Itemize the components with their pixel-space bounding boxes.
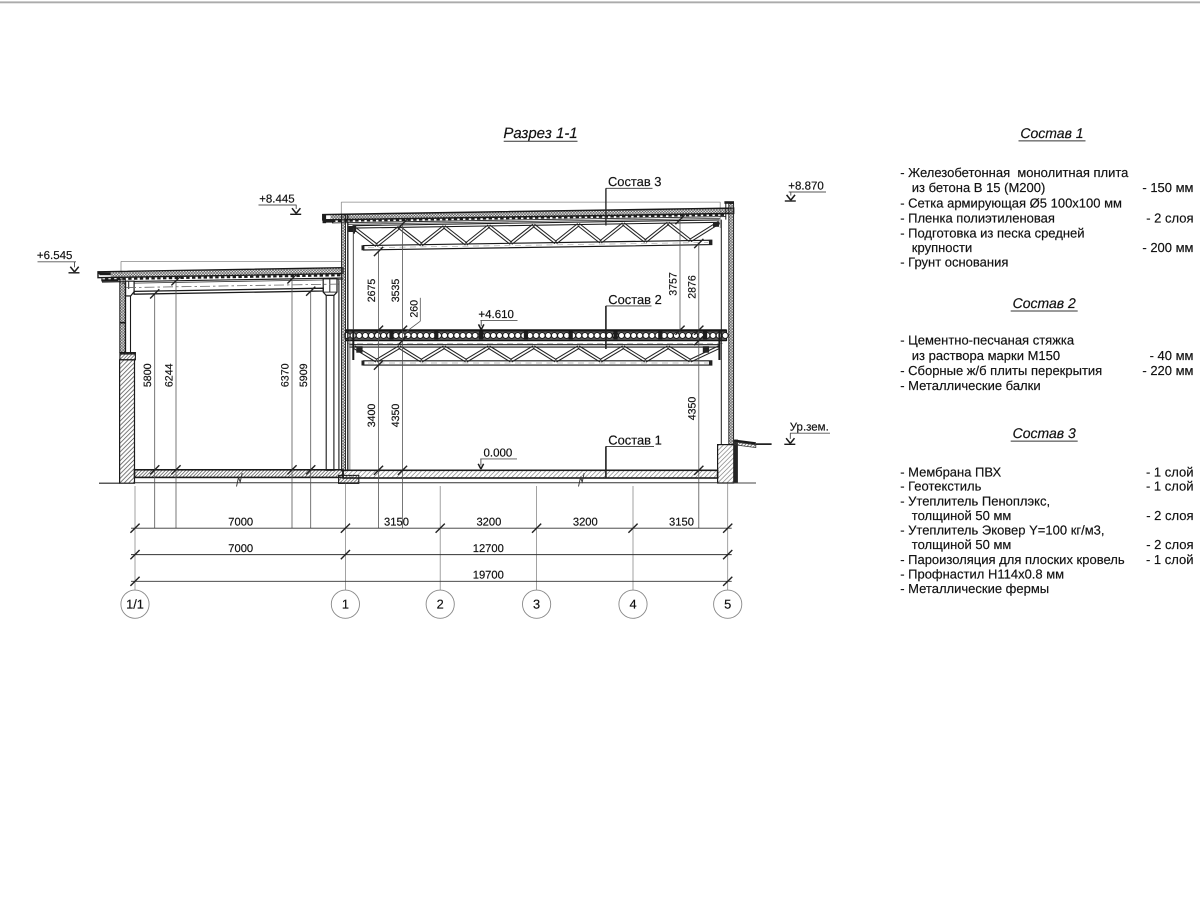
svg-text:из бетона В 15 (М200): из бетона В 15 (М200) — [912, 180, 1046, 195]
svg-text:- 40 мм: - 40 мм — [1150, 348, 1194, 363]
svg-text:- Подготовка из песка средней: - Подготовка из песка средней — [900, 225, 1084, 240]
svg-text:Разрез 1-1: Разрез 1-1 — [503, 125, 577, 142]
svg-text:- Цементно-песчаная стяжка: - Цементно-песчаная стяжка — [900, 333, 1075, 348]
svg-text:+8.870: +8.870 — [788, 180, 824, 192]
svg-text:- 1 слой: - 1 слой — [1146, 552, 1194, 567]
svg-text:3400: 3400 — [366, 404, 378, 428]
svg-text:1/1: 1/1 — [126, 597, 144, 612]
svg-text:- Металлические фермы: - Металлические фермы — [900, 581, 1049, 596]
svg-text:+6.545: +6.545 — [37, 250, 73, 262]
svg-text:Состав 1: Состав 1 — [1020, 125, 1083, 141]
svg-text:Ур.зем.: Ур.зем. — [790, 422, 829, 434]
svg-text:0.000: 0.000 — [484, 447, 513, 459]
svg-text:- Грунт основания: - Грунт основания — [900, 254, 1008, 269]
svg-text:5: 5 — [724, 597, 731, 612]
svg-text:260: 260 — [409, 300, 421, 318]
svg-text:1: 1 — [342, 597, 349, 612]
svg-text:- Мембрана ПВХ: - Мембрана ПВХ — [900, 464, 1001, 479]
svg-text:6244: 6244 — [164, 363, 176, 387]
svg-text:- Профнастил Н114х0.8 мм: - Профнастил Н114х0.8 мм — [900, 567, 1064, 582]
svg-text:4350: 4350 — [390, 404, 402, 428]
svg-text:5909: 5909 — [298, 363, 310, 387]
svg-text:2876: 2876 — [686, 275, 698, 299]
svg-text:+4.610: +4.610 — [478, 309, 514, 321]
svg-text:6370: 6370 — [280, 363, 292, 387]
svg-text:12700: 12700 — [473, 543, 504, 555]
svg-text:5800: 5800 — [142, 363, 154, 387]
svg-text:- 2 слоя: - 2 слоя — [1146, 508, 1193, 523]
svg-text:3535: 3535 — [390, 279, 402, 303]
svg-text:- Металлические балки: - Металлические балки — [900, 378, 1040, 393]
svg-text:3200: 3200 — [476, 516, 501, 528]
svg-text:- 200 мм: - 200 мм — [1142, 240, 1193, 255]
svg-text:- Пленка полиэтиленовая: - Пленка полиэтиленовая — [900, 210, 1055, 225]
svg-text:3200: 3200 — [573, 516, 598, 528]
svg-text:толщиной 50 мм: толщиной 50 мм — [912, 508, 1012, 523]
svg-text:Состав 3: Состав 3 — [608, 174, 661, 189]
svg-text:+8.445: +8.445 — [259, 193, 295, 205]
svg-text:Состав 2: Состав 2 — [608, 292, 661, 307]
svg-text:3150: 3150 — [384, 516, 409, 528]
svg-text:из раствора марки М150: из раствора марки М150 — [912, 348, 1060, 363]
svg-text:2675: 2675 — [366, 279, 378, 303]
svg-text:- Сетка армирующая Ø5 100х100: - Сетка армирующая Ø5 100х100 мм — [900, 195, 1122, 210]
svg-text:4: 4 — [629, 597, 636, 612]
svg-text:7000: 7000 — [228, 543, 253, 555]
svg-text:- Утеплитель Эковер Y=100 кг/м: - Утеплитель Эковер Y=100 кг/м3, — [900, 523, 1104, 538]
svg-text:7000: 7000 — [228, 516, 253, 528]
svg-text:3150: 3150 — [669, 516, 694, 528]
svg-text:2: 2 — [437, 597, 444, 612]
svg-text:- 2 слоя: - 2 слоя — [1146, 537, 1193, 552]
svg-text:толщиной 50 мм: толщиной 50 мм — [912, 537, 1012, 552]
svg-text:19700: 19700 — [473, 570, 504, 582]
svg-text:- 1 слой: - 1 слой — [1146, 479, 1194, 494]
svg-text:- Железобетонная монолитная п: - Железобетонная монолитная плита — [900, 165, 1129, 180]
svg-text:крупности: крупности — [912, 240, 972, 255]
svg-text:- 220 мм: - 220 мм — [1142, 363, 1193, 378]
svg-text:Состав 2: Состав 2 — [1013, 295, 1076, 311]
svg-text:- 150 мм: - 150 мм — [1142, 180, 1193, 195]
svg-text:3757: 3757 — [668, 272, 680, 296]
svg-text:Состав 1: Состав 1 — [608, 432, 661, 447]
svg-text:- 2 слоя: - 2 слоя — [1146, 210, 1193, 225]
svg-text:- Сборные ж/б плиты перекрытия: - Сборные ж/б плиты перекрытия — [900, 363, 1102, 378]
svg-text:- Пароизоляция для плоских кро: - Пароизоляция для плоских кровель — [900, 552, 1125, 567]
svg-text:Состав 3: Состав 3 — [1013, 425, 1076, 441]
svg-text:- Утеплитель Пеноплэкс,: - Утеплитель Пеноплэкс, — [900, 494, 1050, 509]
svg-text:- 1 слой: - 1 слой — [1146, 464, 1194, 479]
svg-text:- Геотекстиль: - Геотекстиль — [900, 479, 981, 494]
svg-text:4350: 4350 — [686, 397, 698, 421]
svg-text:3: 3 — [533, 597, 540, 612]
